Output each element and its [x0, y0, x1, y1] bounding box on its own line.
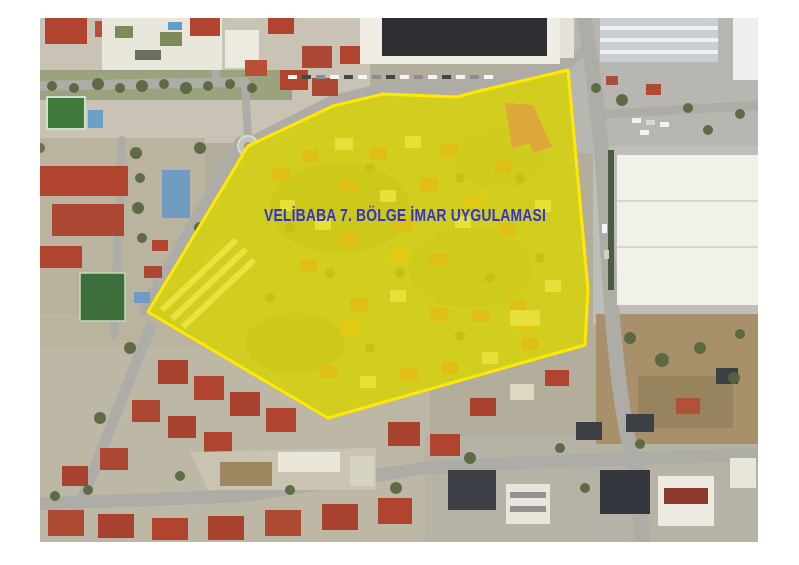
- aerial-photo: VELİBABA 7. BÖLGE İMAR UYGULAMASI: [40, 18, 758, 542]
- page: VELİBABA 7. BÖLGE İMAR UYGULAMASI: [0, 0, 799, 565]
- zone-label: VELİBABA 7. BÖLGE İMAR UYGULAMASI: [264, 205, 546, 225]
- buildings-right: [600, 18, 758, 305]
- aerial-photo-svg: VELİBABA 7. BÖLGE İMAR UYGULAMASI: [40, 18, 758, 542]
